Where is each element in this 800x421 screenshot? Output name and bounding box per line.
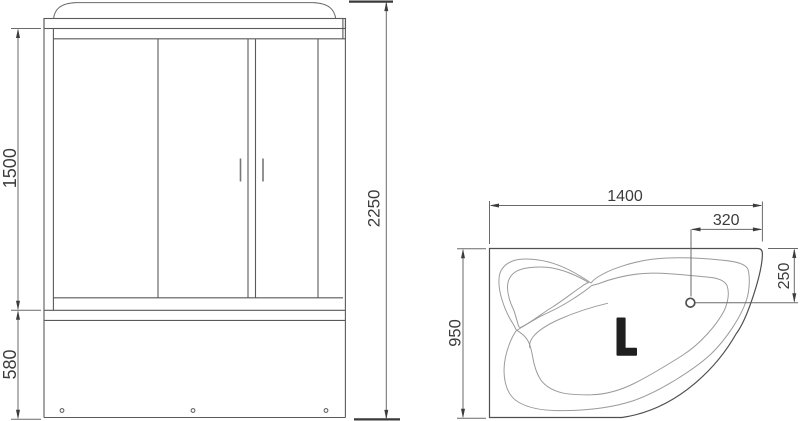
svg-text:320: 320	[713, 212, 740, 229]
svg-text:2250: 2250	[365, 189, 384, 227]
svg-text:950: 950	[447, 319, 465, 347]
svg-text:1500: 1500	[0, 148, 20, 188]
svg-text:580: 580	[0, 349, 20, 379]
svg-text:250: 250	[776, 263, 793, 290]
svg-text:1400: 1400	[607, 188, 643, 205]
